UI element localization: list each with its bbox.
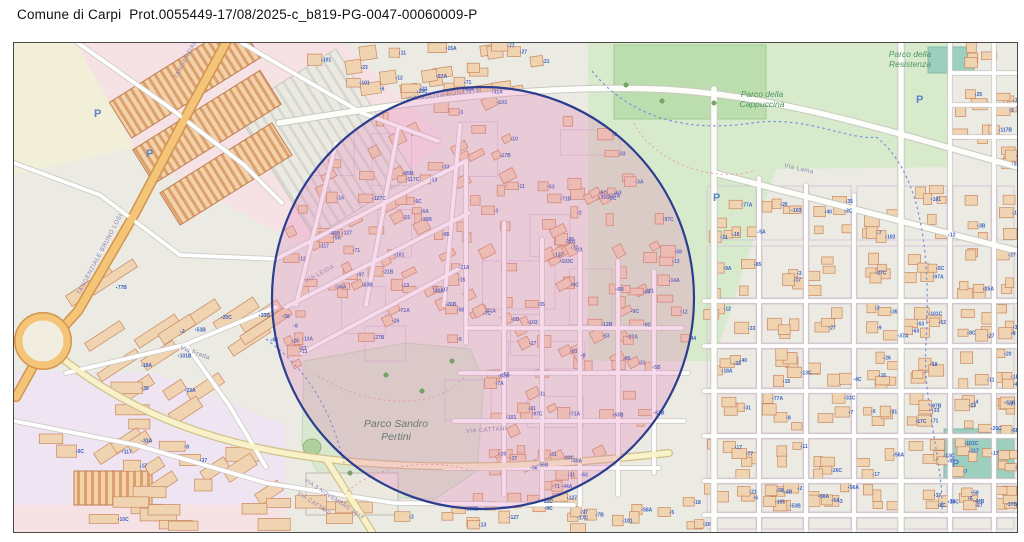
svg-text:27: 27 [830,325,836,331]
svg-text:8C: 8C [969,331,976,337]
svg-text:63: 63 [919,321,925,327]
svg-text:5C: 5C [938,266,945,272]
svg-text:6: 6 [873,409,876,415]
svg-text:97A: 97A [934,275,944,281]
parking-icon: P [916,94,923,106]
svg-text:101: 101 [933,197,942,203]
svg-text:101C: 101C [930,311,942,317]
svg-text:15A: 15A [447,46,457,52]
svg-text:58: 58 [778,488,784,494]
svg-text:Pertini: Pertini [381,431,411,443]
svg-text:2: 2 [411,515,414,521]
svg-text:17: 17 [795,278,801,284]
svg-text:17: 17 [993,451,999,457]
svg-text:20C: 20C [223,315,233,321]
svg-text:16: 16 [734,232,740,238]
svg-text:40: 40 [826,210,832,216]
svg-text:33: 33 [1015,325,1017,331]
svg-text:37: 37 [936,493,942,499]
svg-text:127: 127 [569,495,578,501]
svg-text:35: 35 [847,199,853,205]
svg-text:18A: 18A [723,369,733,375]
svg-text:77: 77 [509,44,515,50]
svg-text:101B: 101B [180,353,192,359]
svg-text:8: 8 [186,444,189,450]
svg-text:18: 18 [695,500,701,506]
svg-text:31: 31 [745,405,751,411]
map-svg: TANGENZIALE BRUNO LOSITANGENZIALE BRUNO … [14,43,1017,532]
svg-text:13: 13 [481,523,487,529]
svg-text:18: 18 [932,362,938,368]
svg-text:20: 20 [1006,351,1012,357]
svg-text:117: 117 [971,449,979,455]
parking-icon: P [713,192,720,204]
svg-text:101: 101 [777,500,786,506]
svg-text:11: 11 [802,444,808,450]
svg-text:101C: 101C [966,441,978,447]
svg-text:77: 77 [748,452,754,458]
svg-text:12: 12 [950,233,956,239]
svg-text:40: 40 [741,358,747,364]
svg-text:16: 16 [880,373,886,379]
svg-text:71: 71 [933,419,939,425]
svg-text:37A: 37A [899,333,909,339]
svg-text:97B: 97B [932,403,942,409]
svg-text:25: 25 [977,92,983,98]
svg-text:27: 27 [1010,253,1016,259]
svg-text:5: 5 [671,510,674,516]
svg-text:31C: 31C [846,396,856,402]
svg-text:4C: 4C [1015,382,1017,388]
svg-text:31: 31 [950,499,956,505]
svg-text:11: 11 [989,378,995,384]
svg-text:17: 17 [737,445,743,451]
parking-icon: P [146,148,153,160]
svg-text:58: 58 [973,490,979,496]
svg-text:31: 31 [422,86,428,92]
svg-text:Resistenza: Resistenza [889,59,931,69]
parking-icon: P [952,458,959,470]
svg-text:6: 6 [970,496,973,502]
svg-text:8: 8 [788,415,791,421]
svg-text:117: 117 [124,449,132,455]
svg-text:26: 26 [782,202,788,208]
svg-text:71: 71 [1015,98,1017,104]
svg-text:26: 26 [885,356,891,362]
svg-text:2: 2 [182,329,185,335]
svg-text:27C: 27C [877,270,887,276]
svg-text:25C: 25C [993,426,1003,432]
protocol-header-title: Comune di Carpi Prot.0055449-17/08/2025-… [17,7,478,22]
svg-text:63: 63 [914,328,920,334]
svg-text:7: 7 [965,470,968,476]
svg-text:103: 103 [793,208,802,214]
svg-text:97A: 97A [438,74,448,80]
svg-text:6C: 6C [78,449,85,455]
map-canvas: TANGENZIALE BRUNO LOSITANGENZIALE BRUNO … [14,43,1017,532]
city-map-image: TANGENZIALE BRUNO LOSITANGENZIALE BRUNO … [13,42,1018,533]
svg-text:9C: 9C [546,506,553,512]
svg-text:6: 6 [755,495,758,501]
svg-text:17: 17 [874,472,880,478]
svg-text:4C: 4C [855,377,862,383]
svg-text:17: 17 [142,464,148,470]
svg-text:2C: 2C [846,208,853,214]
svg-text:23: 23 [362,65,368,71]
svg-text:101: 101 [361,81,370,87]
svg-text:17C: 17C [917,419,927,425]
svg-text:26C: 26C [833,468,843,474]
svg-text:35: 35 [892,310,898,316]
svg-text:7: 7 [879,231,882,237]
svg-text:11A: 11A [1014,211,1017,217]
svg-text:25A: 25A [985,286,995,292]
svg-text:10C: 10C [120,517,130,523]
svg-text:6A: 6A [833,498,840,504]
svg-text:13C: 13C [802,370,812,376]
svg-text:37: 37 [202,458,208,464]
svg-text:56A: 56A [820,494,830,500]
svg-text:Parco della: Parco della [889,49,932,59]
svg-text:101: 101 [624,519,633,525]
svg-text:2: 2 [799,486,802,492]
svg-text:31: 31 [722,235,728,241]
svg-text:103: 103 [887,234,896,240]
svg-text:5A: 5A [759,230,766,236]
svg-text:117B: 117B [1000,128,1012,134]
svg-text:Cappuccina: Cappuccina [740,99,785,109]
svg-text:33: 33 [750,326,756,332]
svg-text:12: 12 [940,320,946,326]
svg-text:33B: 33B [261,313,271,319]
svg-text:127: 127 [511,515,520,521]
svg-text:3: 3 [840,499,843,505]
svg-text:56A: 56A [895,452,905,458]
svg-text:12: 12 [397,75,403,81]
svg-text:17C: 17C [579,515,589,521]
svg-text:18A: 18A [143,363,153,369]
svg-text:97: 97 [582,510,588,516]
svg-text:20: 20 [705,522,711,528]
svg-text:8: 8 [1013,331,1016,337]
svg-text:15: 15 [785,379,791,385]
svg-text:1B: 1B [1013,374,1017,380]
svg-text:77A: 77A [743,203,753,209]
svg-text:Parco della: Parco della [741,89,784,99]
svg-text:71: 71 [466,80,472,86]
svg-text:5B: 5B [1013,428,1017,434]
svg-text:85: 85 [756,262,762,268]
svg-text:12: 12 [725,307,731,313]
svg-text:27: 27 [989,333,995,339]
svg-text:23: 23 [970,403,976,409]
svg-text:4B: 4B [786,489,793,495]
svg-text:77B: 77B [118,285,128,291]
svg-text:9: 9 [879,325,882,331]
svg-text:53B: 53B [197,327,207,333]
svg-text:33: 33 [735,361,741,367]
svg-text:33A: 33A [143,439,153,445]
svg-text:11: 11 [401,51,407,57]
svg-text:23A: 23A [186,388,196,394]
svg-text:7: 7 [1011,402,1014,408]
selection-radius-overlay [272,87,694,509]
svg-text:56A: 56A [850,485,860,491]
svg-text:8C: 8C [939,503,946,509]
svg-text:37B: 37B [1008,502,1017,508]
svg-text:21: 21 [751,489,757,495]
svg-text:35: 35 [143,386,149,392]
svg-text:27: 27 [977,503,983,509]
svg-text:27: 27 [522,50,528,56]
svg-text:101: 101 [323,58,332,64]
svg-text:Parco Sandro: Parco Sandro [364,418,428,430]
svg-text:9: 9 [1011,108,1014,114]
svg-text:31: 31 [892,409,898,415]
svg-text:2: 2 [877,306,880,312]
svg-text:6: 6 [382,86,385,92]
svg-text:3B: 3B [979,223,986,229]
parking-icon: P [94,108,101,120]
svg-text:53B: 53B [792,503,802,509]
svg-text:58A: 58A [643,508,653,514]
svg-text:127: 127 [1014,162,1017,168]
svg-text:21: 21 [544,59,550,65]
svg-text:7B: 7B [597,513,604,519]
svg-text:77A: 77A [774,396,784,402]
svg-text:9A: 9A [725,266,732,272]
svg-text:7: 7 [850,410,853,416]
svg-text:3: 3 [799,271,802,277]
